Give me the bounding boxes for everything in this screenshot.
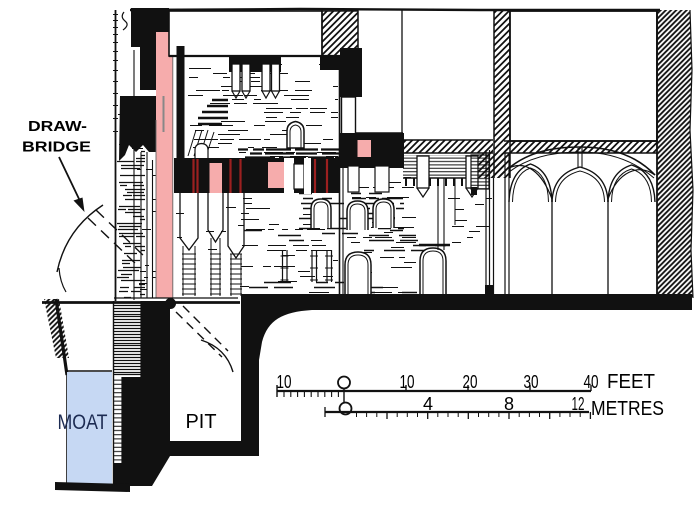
svg-text:4: 4 <box>423 394 433 414</box>
svg-text:10: 10 <box>400 372 415 392</box>
svg-text:DRAW-: DRAW- <box>28 119 87 135</box>
svg-text:40: 40 <box>584 372 599 392</box>
svg-text:PIT: PIT <box>186 411 217 433</box>
svg-text:20: 20 <box>463 372 478 392</box>
svg-text:30: 30 <box>524 372 539 392</box>
svg-text:8: 8 <box>504 394 514 414</box>
svg-text:12: 12 <box>572 394 585 414</box>
svg-text:FEET: FEET <box>607 371 655 393</box>
svg-text:METRES: METRES <box>591 398 664 420</box>
svg-text:BRIDGE: BRIDGE <box>22 140 91 156</box>
svg-text:10: 10 <box>277 372 292 392</box>
svg-text:MOAT: MOAT <box>58 411 108 434</box>
